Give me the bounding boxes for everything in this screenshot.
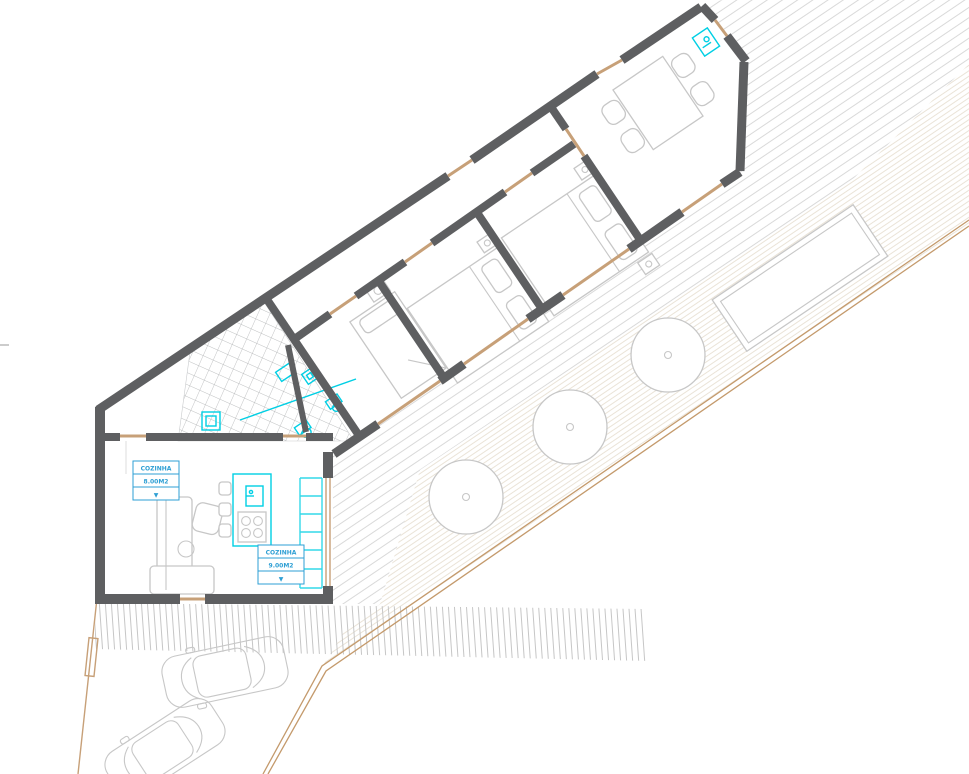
side-mirror bbox=[197, 703, 207, 710]
paved-walkway-stripes bbox=[95, 603, 650, 661]
tree bbox=[631, 318, 705, 392]
floor-plan-canvas: COZINHA 8.00M2 ▼ COZINHA 9.00M2 ▼ bbox=[0, 0, 969, 774]
bar-stool bbox=[219, 503, 231, 516]
wall-living-top bbox=[104, 436, 333, 437]
room-label-area: 8.00M2 bbox=[144, 479, 169, 486]
bar-stool bbox=[219, 482, 231, 495]
room-label-name: COZINHA bbox=[141, 466, 172, 473]
room-label-kitchen: COZINHA 9.00M2 ▼ bbox=[258, 545, 304, 584]
side-mirror bbox=[120, 736, 130, 745]
left-boundary-line bbox=[78, 598, 97, 774]
room-label-area: 9.00M2 bbox=[269, 563, 294, 570]
tree bbox=[429, 460, 503, 534]
room-label-name: COZINHA bbox=[266, 550, 297, 557]
bar-stool bbox=[219, 524, 231, 537]
floor-plan-page: COZINHA 8.00M2 ▼ COZINHA 9.00M2 ▼ bbox=[0, 0, 969, 774]
room-label-marker: ▼ bbox=[279, 576, 284, 583]
room-label-marker: ▼ bbox=[154, 492, 159, 499]
room-label-living: COZINHA 8.00M2 ▼ bbox=[133, 461, 179, 500]
tree bbox=[533, 390, 607, 464]
cooktop bbox=[238, 512, 266, 542]
exterior-wall-east bbox=[740, 62, 744, 171]
